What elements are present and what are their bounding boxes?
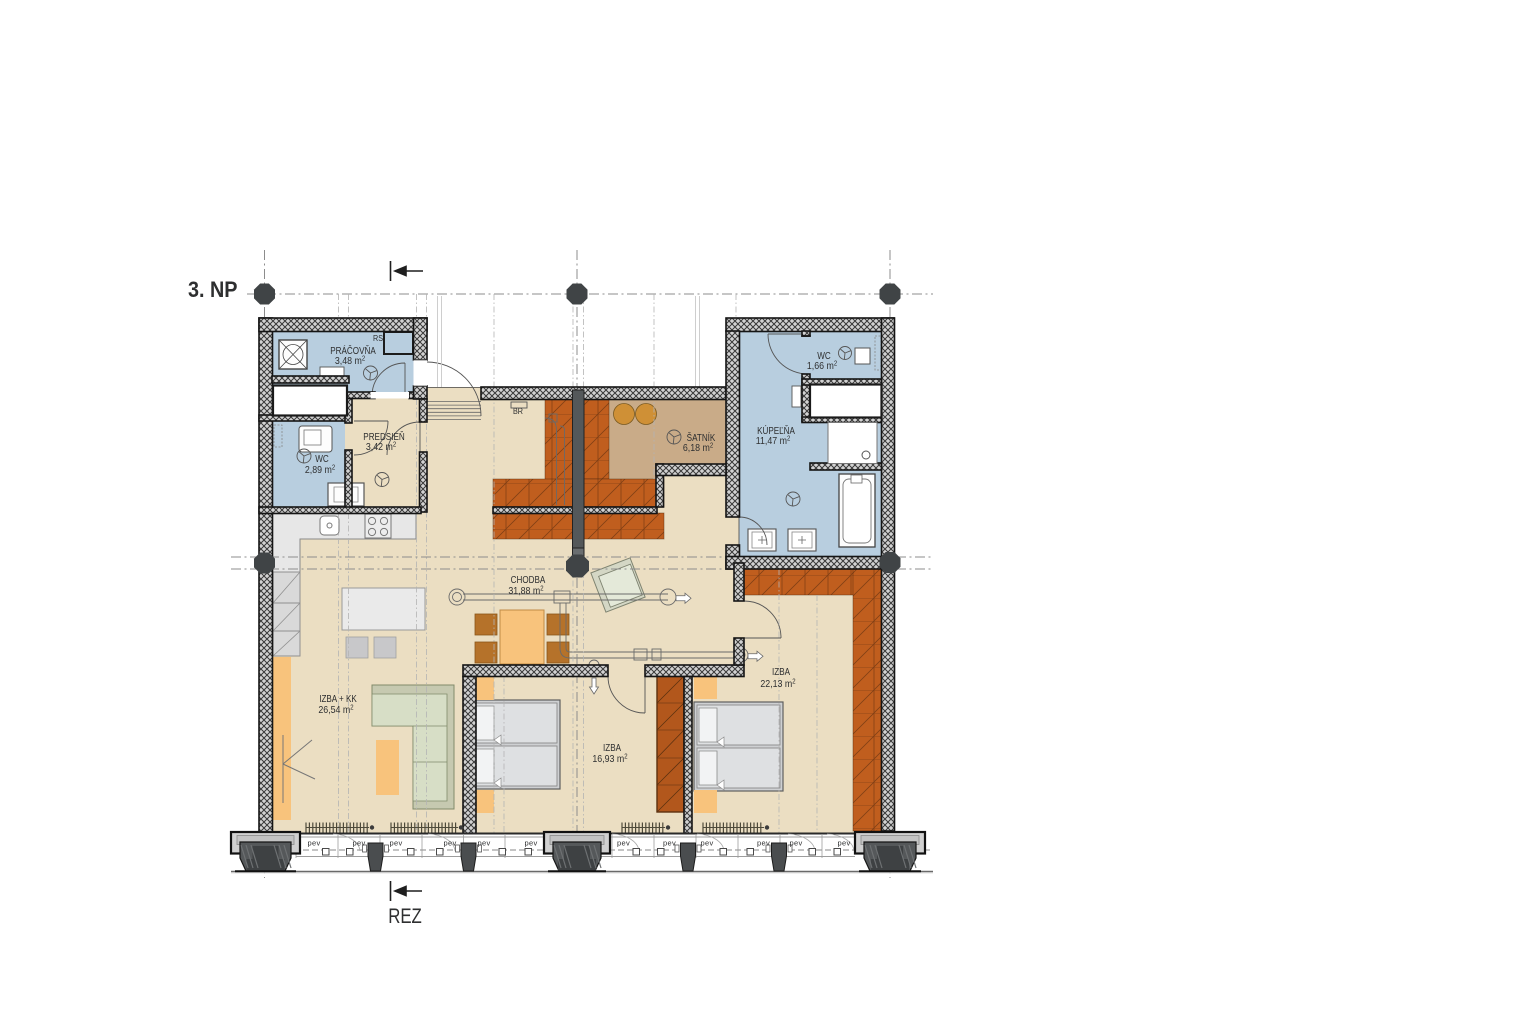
svg-text:31,88 m2: 31,88 m2 <box>508 585 544 597</box>
svg-text:2,89 m2: 2,89 m2 <box>305 464 336 476</box>
svg-text:IZBA: IZBA <box>772 666 791 677</box>
svg-text:WC: WC <box>315 453 329 464</box>
svg-text:11,47 m2: 11,47 m2 <box>756 435 791 447</box>
svg-text:6,18 m2: 6,18 m2 <box>683 442 714 454</box>
svg-text:pev: pev <box>390 839 403 848</box>
svg-text:3,48 m2: 3,48 m2 <box>335 355 366 367</box>
svg-text:IZBA + KK: IZBA + KK <box>319 693 357 704</box>
svg-text:22,13 m2: 22,13 m2 <box>760 678 796 690</box>
svg-text:CHODBA: CHODBA <box>511 574 546 585</box>
svg-text:pev: pev <box>663 839 676 848</box>
svg-text:pev: pev <box>701 839 714 848</box>
svg-text:pev: pev <box>444 839 457 848</box>
svg-text:pev: pev <box>308 839 321 848</box>
svg-text:pev: pev <box>757 839 770 848</box>
svg-text:3,42 m2: 3,42 m2 <box>366 441 397 453</box>
svg-text:RS: RS <box>373 333 383 343</box>
svg-text:pev: pev <box>617 839 630 848</box>
svg-text:pev: pev <box>525 839 538 848</box>
svg-text:IZBA: IZBA <box>603 742 622 753</box>
svg-text:pev: pev <box>353 839 366 848</box>
svg-text:3. NP: 3. NP <box>188 278 238 302</box>
svg-text:pev: pev <box>790 839 803 848</box>
svg-text:pev: pev <box>838 839 851 848</box>
svg-text:pev: pev <box>478 839 491 848</box>
svg-text:1,66 m2: 1,66 m2 <box>807 360 838 372</box>
svg-text:26,54 m2: 26,54 m2 <box>318 704 354 716</box>
svg-text:REZ: REZ <box>388 905 422 928</box>
svg-text:16,93 m2: 16,93 m2 <box>592 753 628 765</box>
